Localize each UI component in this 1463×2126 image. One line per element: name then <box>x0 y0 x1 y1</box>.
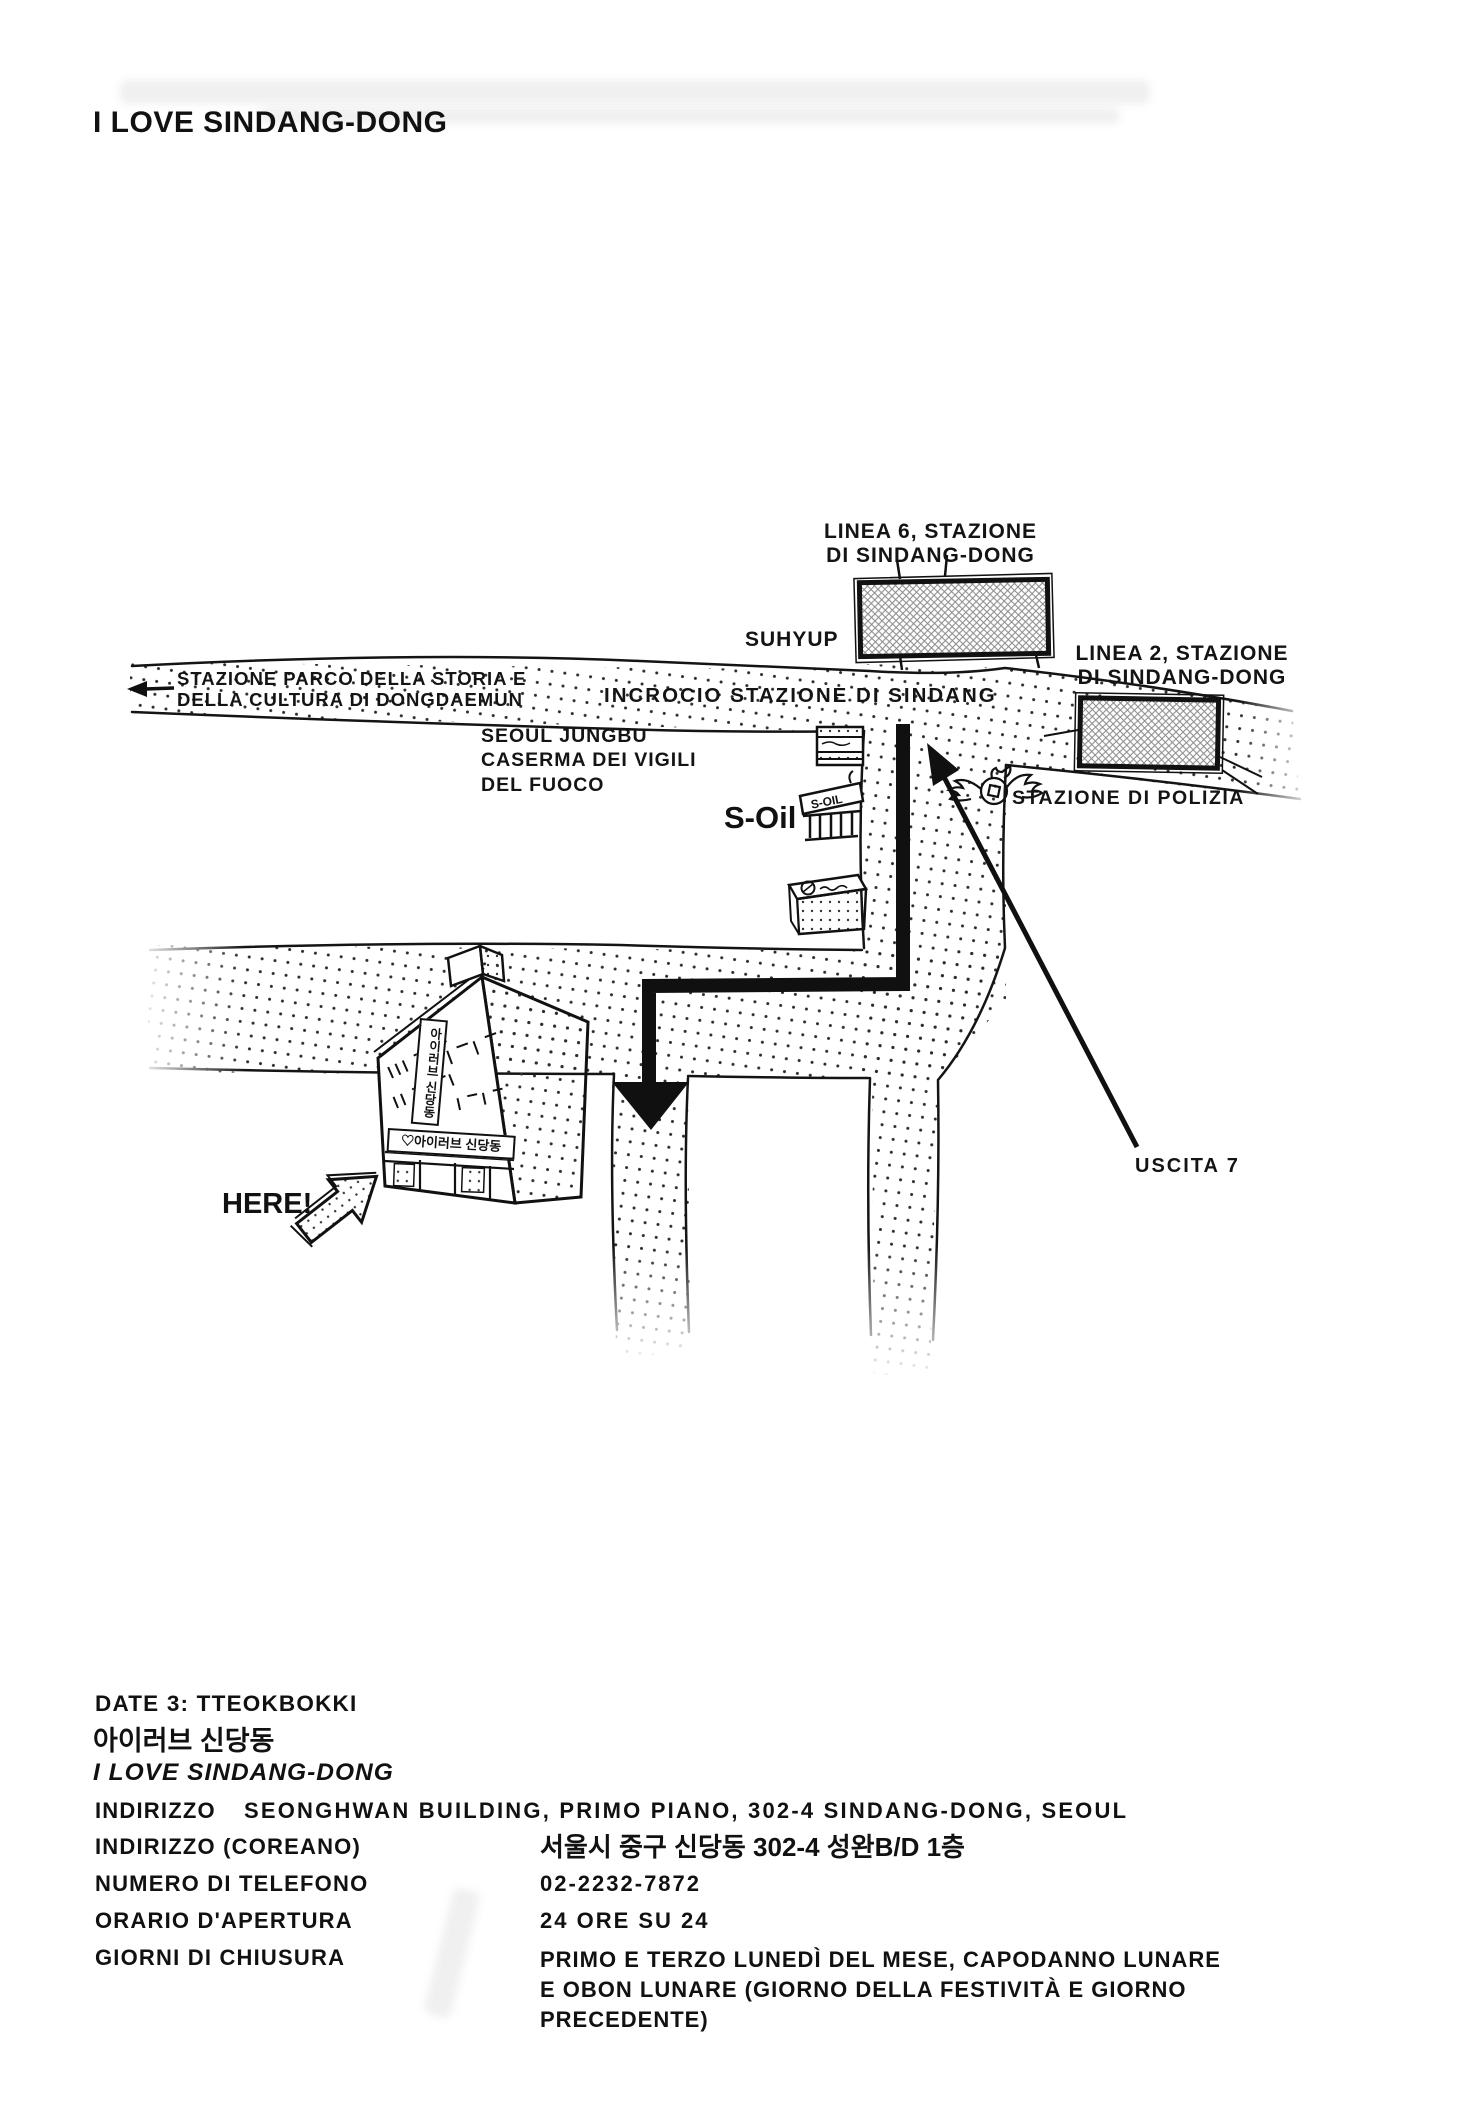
label-line2-station: LINEA 2, STAZIONE DI SINDANG-DONG <box>1056 642 1308 691</box>
label-incrocio: INCROCIO STAZIONE DI SINDANG <box>604 684 997 708</box>
row-label: GIORNI DI CHIUSURA <box>95 1945 345 1971</box>
label-fire-station: SEOUL JUNGBU CASERMA DEI VIGILI DEL FUOC… <box>481 724 697 797</box>
label-police-station: STAZIONE DI POLIZIA <box>1012 787 1245 810</box>
row-value: 02-2232-7872 <box>540 1871 701 1897</box>
label-line6-station: LINEA 6, STAZIONE DI SINDANG-DONG <box>793 520 1068 569</box>
row-label: ORARIO D'APERTURA <box>95 1908 353 1934</box>
page-title: I LOVE SINDANG-DONG <box>93 106 448 140</box>
row-label: NUMERO DI TELEFONO <box>95 1871 368 1897</box>
date-line: DATE 3: TTEOKBOKKI <box>95 1691 357 1717</box>
row-value: 서울시 중구 신당동 302-4 성완B/D 1층 <box>540 1827 965 1864</box>
road-fade <box>598 1248 702 1366</box>
label-here: HERE! <box>222 1188 312 1221</box>
row-value: PRIMO E TERZO LUNEDÌ DEL MESE, CAPODANNO… <box>540 1945 1221 2035</box>
label-suhyup: SUHYUP <box>745 628 839 652</box>
line6-station-building <box>854 555 1054 670</box>
restaurant-name-korean: 아이러브 신당동 <box>93 1719 274 1758</box>
label-dongdaemun-station: STAZIONE PARCO DELLA STORIA E DELLA CULT… <box>177 668 526 711</box>
shop-building <box>817 727 863 765</box>
row-value: 24 ORE SU 24 <box>540 1908 710 1934</box>
road-fade <box>856 1245 946 1385</box>
road-fade <box>135 932 245 1080</box>
row-label: INDIRIZZO (COREANO) <box>95 1834 361 1860</box>
s-oil-station-drawing: S-OIL <box>800 771 863 840</box>
row-label: INDIRIZZO <box>95 1798 216 1824</box>
row-value: SEONGHWAN BUILDING, PRIMO PIANO, 302-4 S… <box>244 1798 1128 1824</box>
label-exit7: USCITA 7 <box>1135 1155 1240 1178</box>
convenience-store-drawing <box>789 875 866 934</box>
label-s-oil: S-Oil <box>724 800 796 836</box>
book-page: S-OIL <box>0 0 1463 2126</box>
restaurant-name: I LOVE SINDANG-DONG <box>93 1759 394 1787</box>
